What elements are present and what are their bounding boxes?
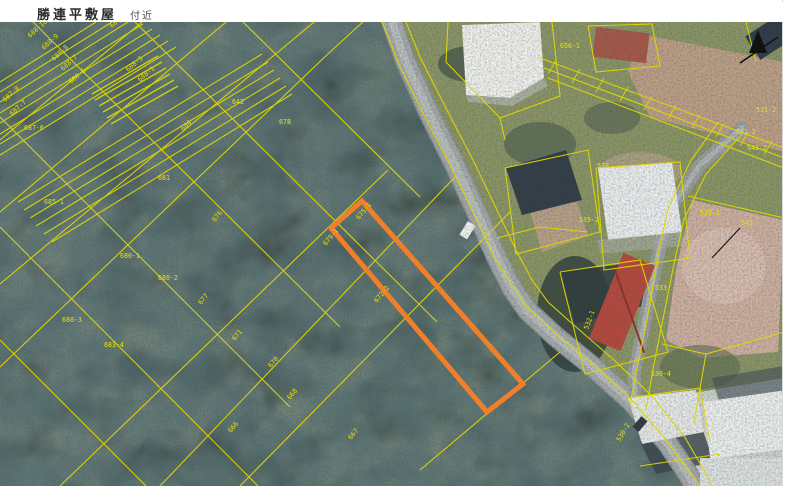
- parcel-label: 680-2: [158, 274, 178, 282]
- parcel-label: 530-4: [651, 370, 671, 378]
- parcel-label: 678: [279, 118, 291, 126]
- aerial-photo-canvas: 688-10688-9688-8688-7688-6687-8687-7687-…: [0, 22, 784, 486]
- map-title-suffix: 付近: [130, 7, 154, 22]
- parcel-label: 533: [655, 284, 667, 292]
- parcel-label: 685-1: [44, 198, 64, 206]
- parcel-label: 535-2: [579, 216, 599, 224]
- parcel-label: 656-1: [560, 42, 580, 50]
- parcel-label: 538: [597, 162, 609, 170]
- aerial-photo: 688-10688-9688-8688-7688-6687-8687-7687-…: [0, 22, 784, 486]
- parcel-label: 531-2: [756, 106, 776, 114]
- parcel-label: 545: [741, 219, 753, 227]
- parcel-label: 542-2: [747, 144, 767, 152]
- parcel-label: 680-3: [62, 316, 82, 324]
- parcel-label: 683-4: [104, 341, 124, 349]
- parcel-label: 681: [158, 174, 170, 182]
- scanned-cadastral-aerial-page: { "header": { "title": "勝連平敷屋", "suffix"…: [0, 0, 800, 486]
- page-header: 勝連平敷屋 付近: [0, 2, 800, 22]
- parcel-label: 687-6: [24, 124, 44, 132]
- parcel-label: 532-2: [736, 128, 756, 136]
- parcel-label: 680-1: [120, 252, 140, 260]
- parcel-label: 642: [232, 98, 244, 106]
- scan-right-margin: [782, 0, 800, 486]
- parcel-label: 533-1: [700, 209, 720, 217]
- map-title: 勝連平敷屋: [37, 4, 117, 23]
